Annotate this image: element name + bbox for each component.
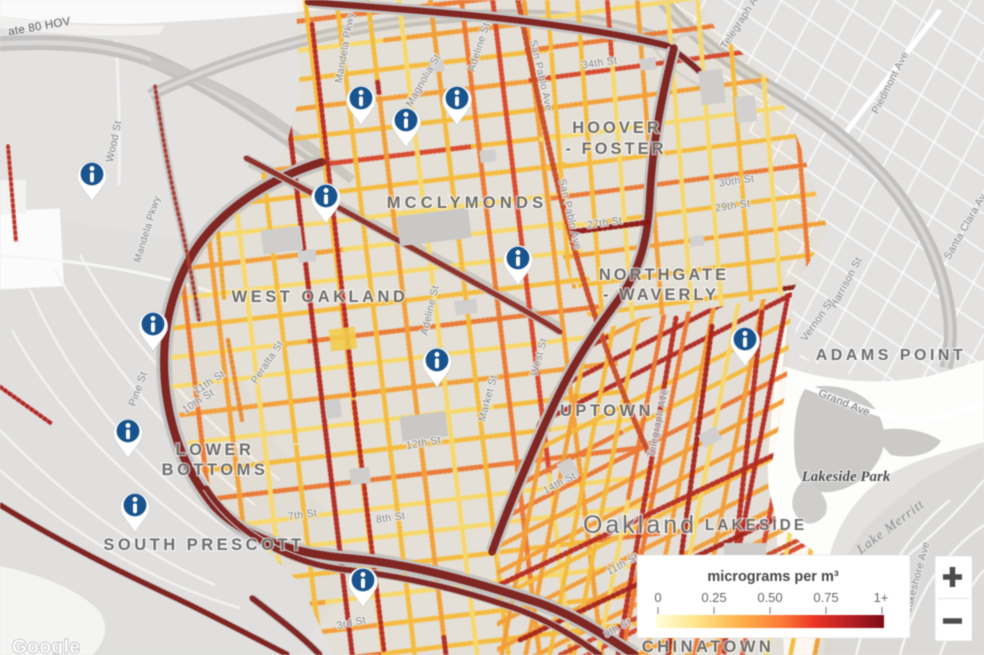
svg-text:- WAVERLY: - WAVERLY <box>603 286 719 304</box>
svg-text:UPTOWN: UPTOWN <box>560 402 654 420</box>
svg-text:SOUTH PRESCOTT: SOUTH PRESCOTT <box>103 536 304 554</box>
svg-text:1+: 1+ <box>874 590 889 605</box>
svg-text:0.25: 0.25 <box>701 590 726 605</box>
svg-text:Google: Google <box>12 637 80 655</box>
svg-text:CHINATOWN: CHINATOWN <box>642 638 775 655</box>
svg-text:LAKESIDE: LAKESIDE <box>705 517 807 534</box>
svg-text:0: 0 <box>654 590 661 605</box>
svg-text:Oakland: Oakland <box>583 511 697 539</box>
svg-text:NORTHGATE: NORTHGATE <box>599 266 729 284</box>
svg-text:0.75: 0.75 <box>813 590 838 605</box>
svg-text:ADAMS POINT: ADAMS POINT <box>816 347 967 364</box>
svg-text:micrograms per m³: micrograms per m³ <box>707 569 839 585</box>
svg-text:Lakeside Park: Lakeside Park <box>801 469 891 485</box>
svg-text:- FOSTER: - FOSTER <box>566 140 667 158</box>
svg-text:0.50: 0.50 <box>757 590 782 605</box>
svg-text:MCCLYMONDS: MCCLYMONDS <box>387 194 548 212</box>
svg-text:HOOVER: HOOVER <box>572 119 662 137</box>
svg-text:WEST OAKLAND: WEST OAKLAND <box>232 288 409 306</box>
svg-text:BOTTOMS: BOTTOMS <box>162 461 269 479</box>
svg-text:LOWER: LOWER <box>176 441 255 459</box>
